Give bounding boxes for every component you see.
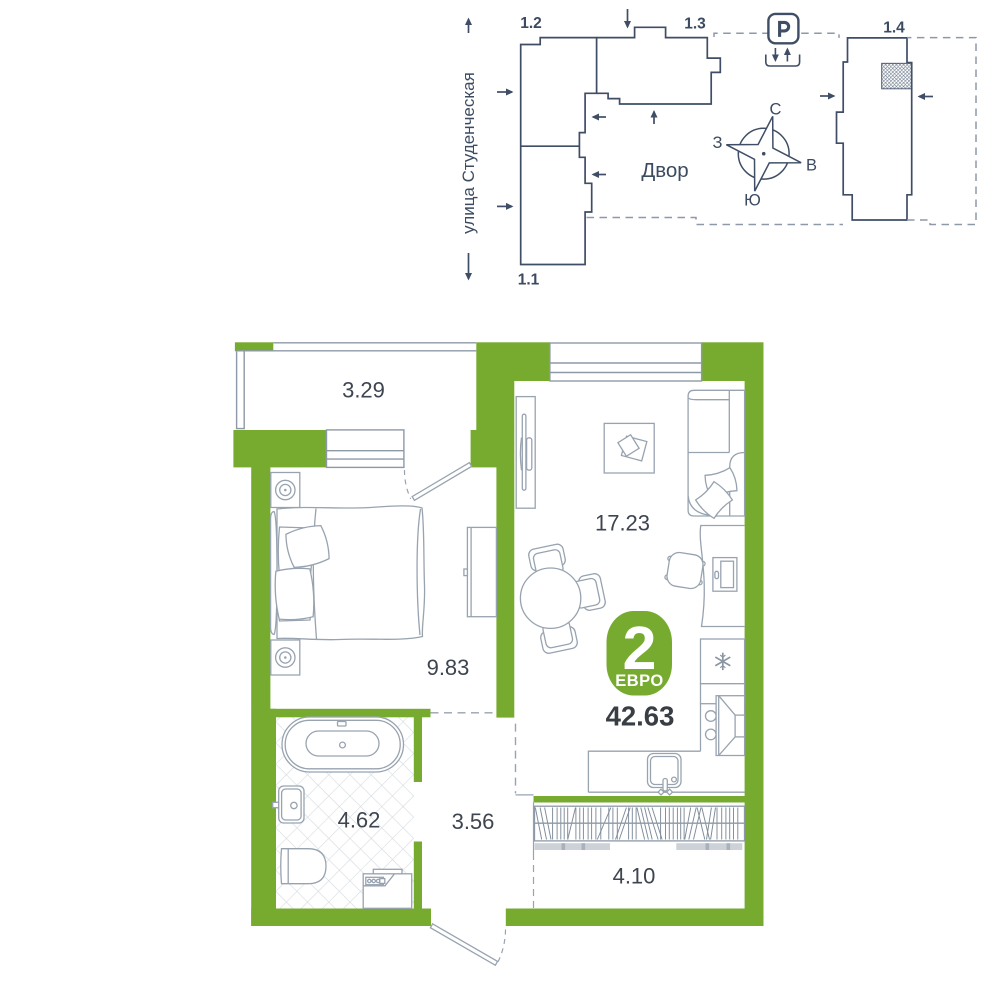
svg-text:1.2: 1.2 (520, 15, 542, 32)
svg-text:С: С (770, 101, 782, 119)
svg-text:4.62: 4.62 (338, 808, 381, 833)
svg-text:9.83: 9.83 (427, 655, 470, 680)
svg-text:Ю: Ю (744, 192, 761, 210)
svg-text:З: З (713, 134, 723, 152)
svg-text:42.63: 42.63 (606, 701, 675, 732)
svg-text:В: В (806, 157, 817, 175)
svg-text:17.23: 17.23 (595, 511, 650, 536)
svg-text:1.1: 1.1 (518, 272, 540, 289)
svg-text:4.10: 4.10 (613, 864, 656, 889)
svg-text:3.56: 3.56 (452, 809, 495, 834)
svg-text:1.4: 1.4 (883, 20, 905, 37)
svg-text:Двор: Двор (641, 159, 688, 182)
svg-text:ЕВРО: ЕВРО (615, 672, 664, 690)
svg-text:1.3: 1.3 (684, 16, 706, 33)
svg-text:улица Студенческая: улица Студенческая (459, 72, 478, 234)
svg-text:3.29: 3.29 (342, 378, 385, 403)
